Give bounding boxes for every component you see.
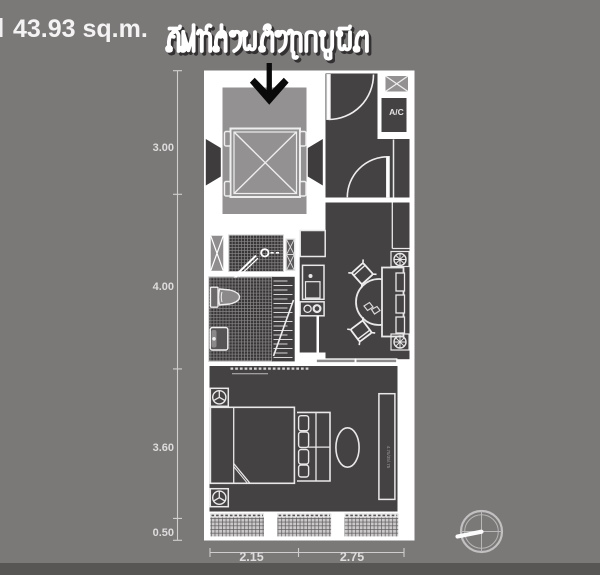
svg-text:2.15: 2.15 [239, 550, 263, 564]
svg-text:0.50: 0.50 [153, 527, 174, 539]
svg-text:3.00: 3.00 [153, 142, 174, 154]
svg-text:2.75: 2.75 [340, 550, 364, 564]
svg-text:4.00: 4.00 [153, 281, 174, 293]
svg-text:3.60: 3.60 [153, 442, 174, 454]
svg-text:43.93 sq.m.: 43.93 sq.m. [13, 15, 148, 43]
svg-text:A/C: A/C [389, 107, 404, 117]
svg-text:4.75/35/.75: 4.75/35/.75 [386, 446, 391, 469]
